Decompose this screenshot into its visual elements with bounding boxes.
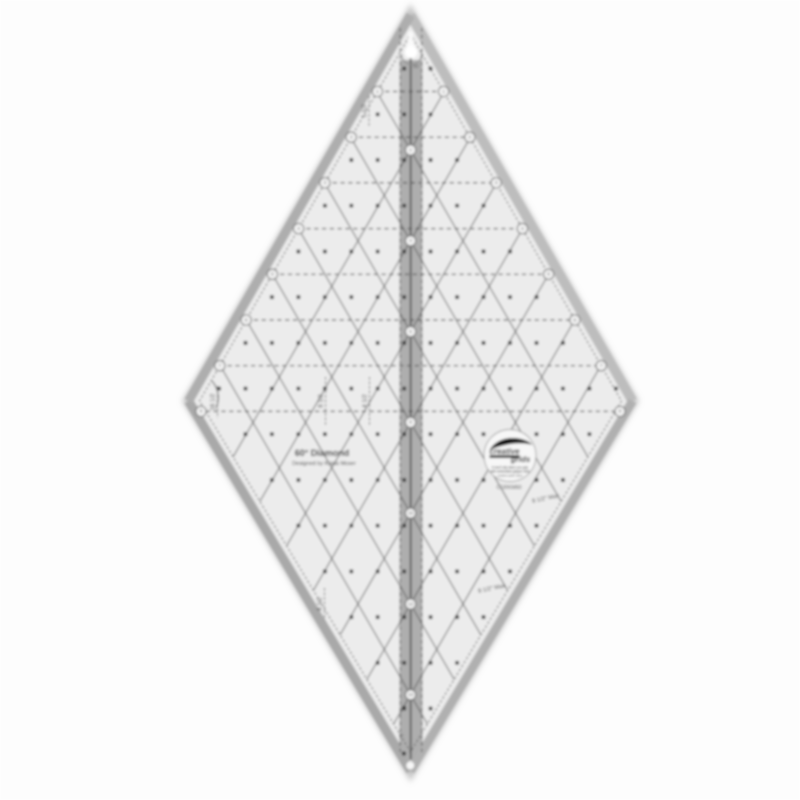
svg-text:CGRKM60: CGRKM60 <box>496 485 521 491</box>
svg-text:2: 2 <box>399 733 405 736</box>
svg-text:Designed by Krista Moser: Designed by Krista Moser <box>292 461 356 467</box>
svg-text:8 1/2: 8 1/2 <box>317 597 323 611</box>
svg-text:16 1/2: 16 1/2 <box>210 393 216 410</box>
svg-text:14: 14 <box>408 692 414 697</box>
svg-text:1 1/2: 1 1/2 <box>362 104 368 118</box>
svg-text:12: 12 <box>408 601 414 606</box>
svg-text:60: 60 <box>413 64 419 70</box>
svg-text:10: 10 <box>408 511 414 516</box>
svg-text:60° Diamond: 60° Diamond <box>295 448 350 458</box>
svg-text:creative grids rulers: creative grids rulers <box>497 474 523 478</box>
svg-text:8 1/2: 8 1/2 <box>318 394 324 408</box>
svg-text:grids: grids <box>510 455 531 464</box>
svg-text:4 1/2: 4 1/2 <box>362 394 368 408</box>
